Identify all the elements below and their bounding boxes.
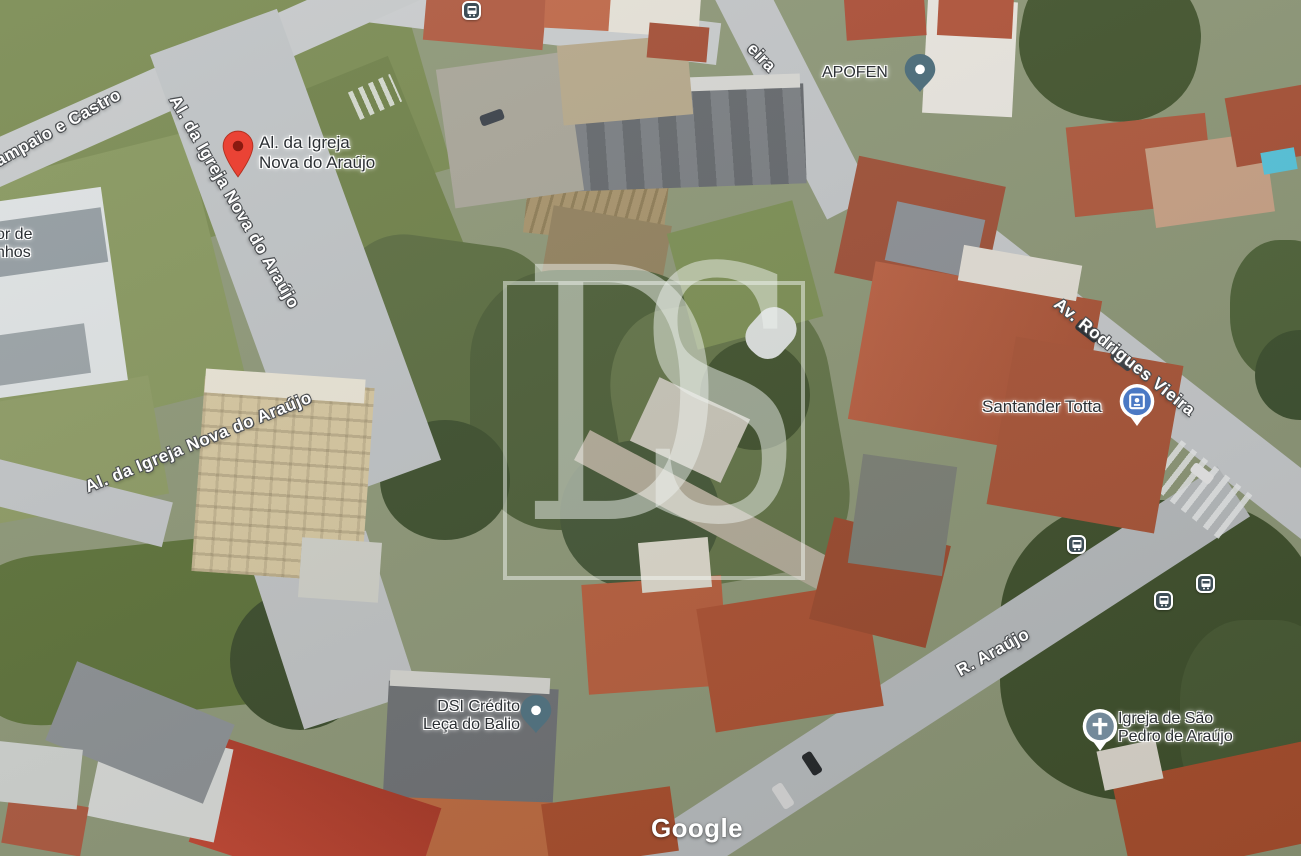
igreja-label-line2: Pedro de Araújo <box>1118 728 1233 746</box>
pool-shape <box>1260 147 1297 175</box>
roof-shape <box>647 22 710 62</box>
roof-shape <box>937 0 1014 39</box>
red-pin-icon <box>222 130 254 178</box>
poi-pin-icon <box>903 53 937 93</box>
poi-pin-icon <box>519 694 553 734</box>
poi-pin-apofen[interactable] <box>903 53 937 98</box>
map-canvas[interactable]: Sampaio e Castro Al. da Igreja Nova do A… <box>0 0 1301 856</box>
marker-label-line2: Nova do Araújo <box>259 153 375 173</box>
building-shape <box>638 537 712 593</box>
bus-stop-icon[interactable] <box>1154 591 1173 610</box>
partial-label-line2: nhos <box>0 244 32 262</box>
bus-glyph-icon <box>1200 578 1212 590</box>
poi-pin-santander[interactable] <box>1118 383 1156 432</box>
igreja-label-line1: Igreja de São <box>1118 710 1233 728</box>
google-logo[interactable]: Google <box>651 813 743 844</box>
destination-marker-label[interactable]: Al. da Igreja Nova do Araújo <box>259 133 375 173</box>
poi-label-igreja[interactable]: Igreja de São Pedro de Araújo <box>1118 710 1233 746</box>
building-shape <box>0 740 83 809</box>
poi-pin-igreja[interactable] <box>1081 708 1119 757</box>
roof-shape <box>843 0 926 41</box>
church-pin-icon <box>1081 708 1119 752</box>
destination-marker[interactable] <box>222 130 254 183</box>
bus-glyph-icon <box>466 5 478 17</box>
poi-label-partial-left: or de nhos <box>0 226 32 262</box>
poi-label-santander[interactable]: Santander Totta <box>982 398 1102 416</box>
bus-stop-icon[interactable] <box>1196 574 1215 593</box>
bank-pin-icon <box>1118 383 1156 427</box>
bus-stop-icon[interactable] <box>1067 535 1086 554</box>
tree-clump-shape <box>1007 0 1212 134</box>
bus-glyph-icon <box>1071 539 1083 551</box>
roof-shape <box>423 0 547 50</box>
poi-label-dsi[interactable]: DSI Crédito Leça do Balio <box>395 698 520 734</box>
partial-label-line1: or de <box>0 226 32 244</box>
dsi-label-line2: Leça do Balio <box>395 716 520 734</box>
building-shape <box>298 537 382 602</box>
bus-glyph-icon <box>1158 595 1170 607</box>
poi-pin-dsi[interactable] <box>519 694 553 739</box>
roof-shape <box>987 337 1184 534</box>
marker-label-line1: Al. da Igreja <box>259 133 375 153</box>
dsi-label-line1: DSI Crédito <box>395 698 520 716</box>
poi-label-apofen[interactable]: APOFEN <box>822 64 888 82</box>
bus-stop-icon[interactable] <box>462 1 481 20</box>
building-shape <box>848 454 957 576</box>
